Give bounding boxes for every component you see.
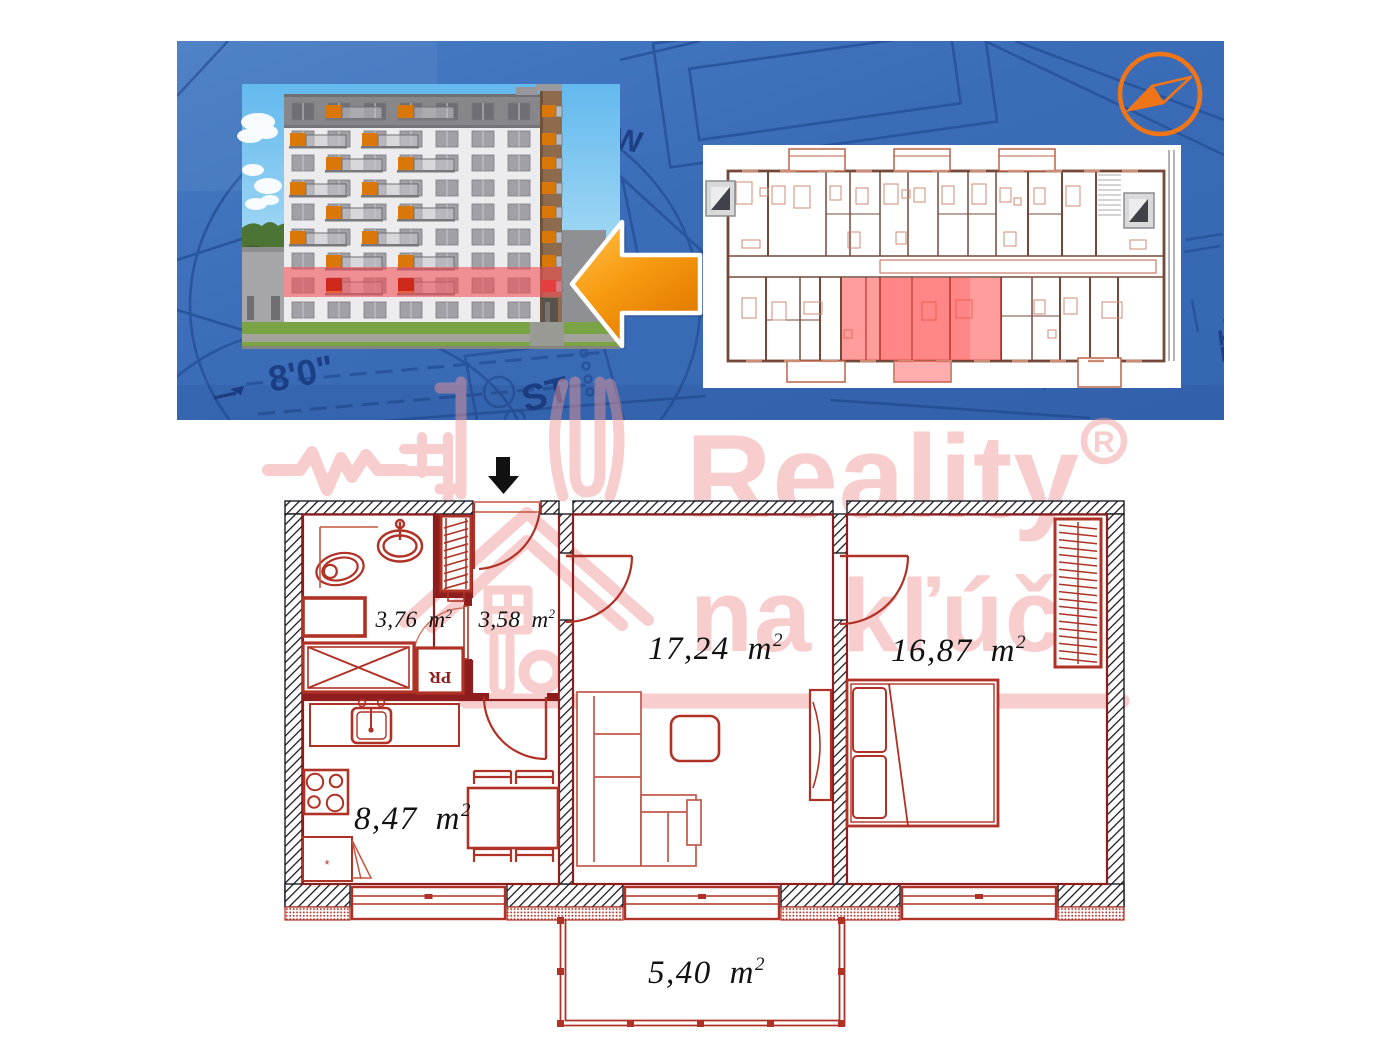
svg-text:17,24 m2: 17,24 m2: [648, 630, 784, 667]
svg-text:3,76 m2: 3,76 m2: [375, 606, 453, 632]
svg-text:*: *: [324, 857, 329, 872]
svg-text:5,40 m2: 5,40 m2: [648, 954, 766, 991]
svg-text:Reality: Reality: [686, 411, 1080, 543]
svg-text:16,87 m2: 16,87 m2: [891, 632, 1027, 669]
svg-text:PR: PR: [428, 668, 451, 687]
svg-text:8,47 m2: 8,47 m2: [354, 800, 472, 837]
svg-text:R: R: [1093, 426, 1115, 459]
svg-text:3,58 m2: 3,58 m2: [478, 606, 556, 632]
